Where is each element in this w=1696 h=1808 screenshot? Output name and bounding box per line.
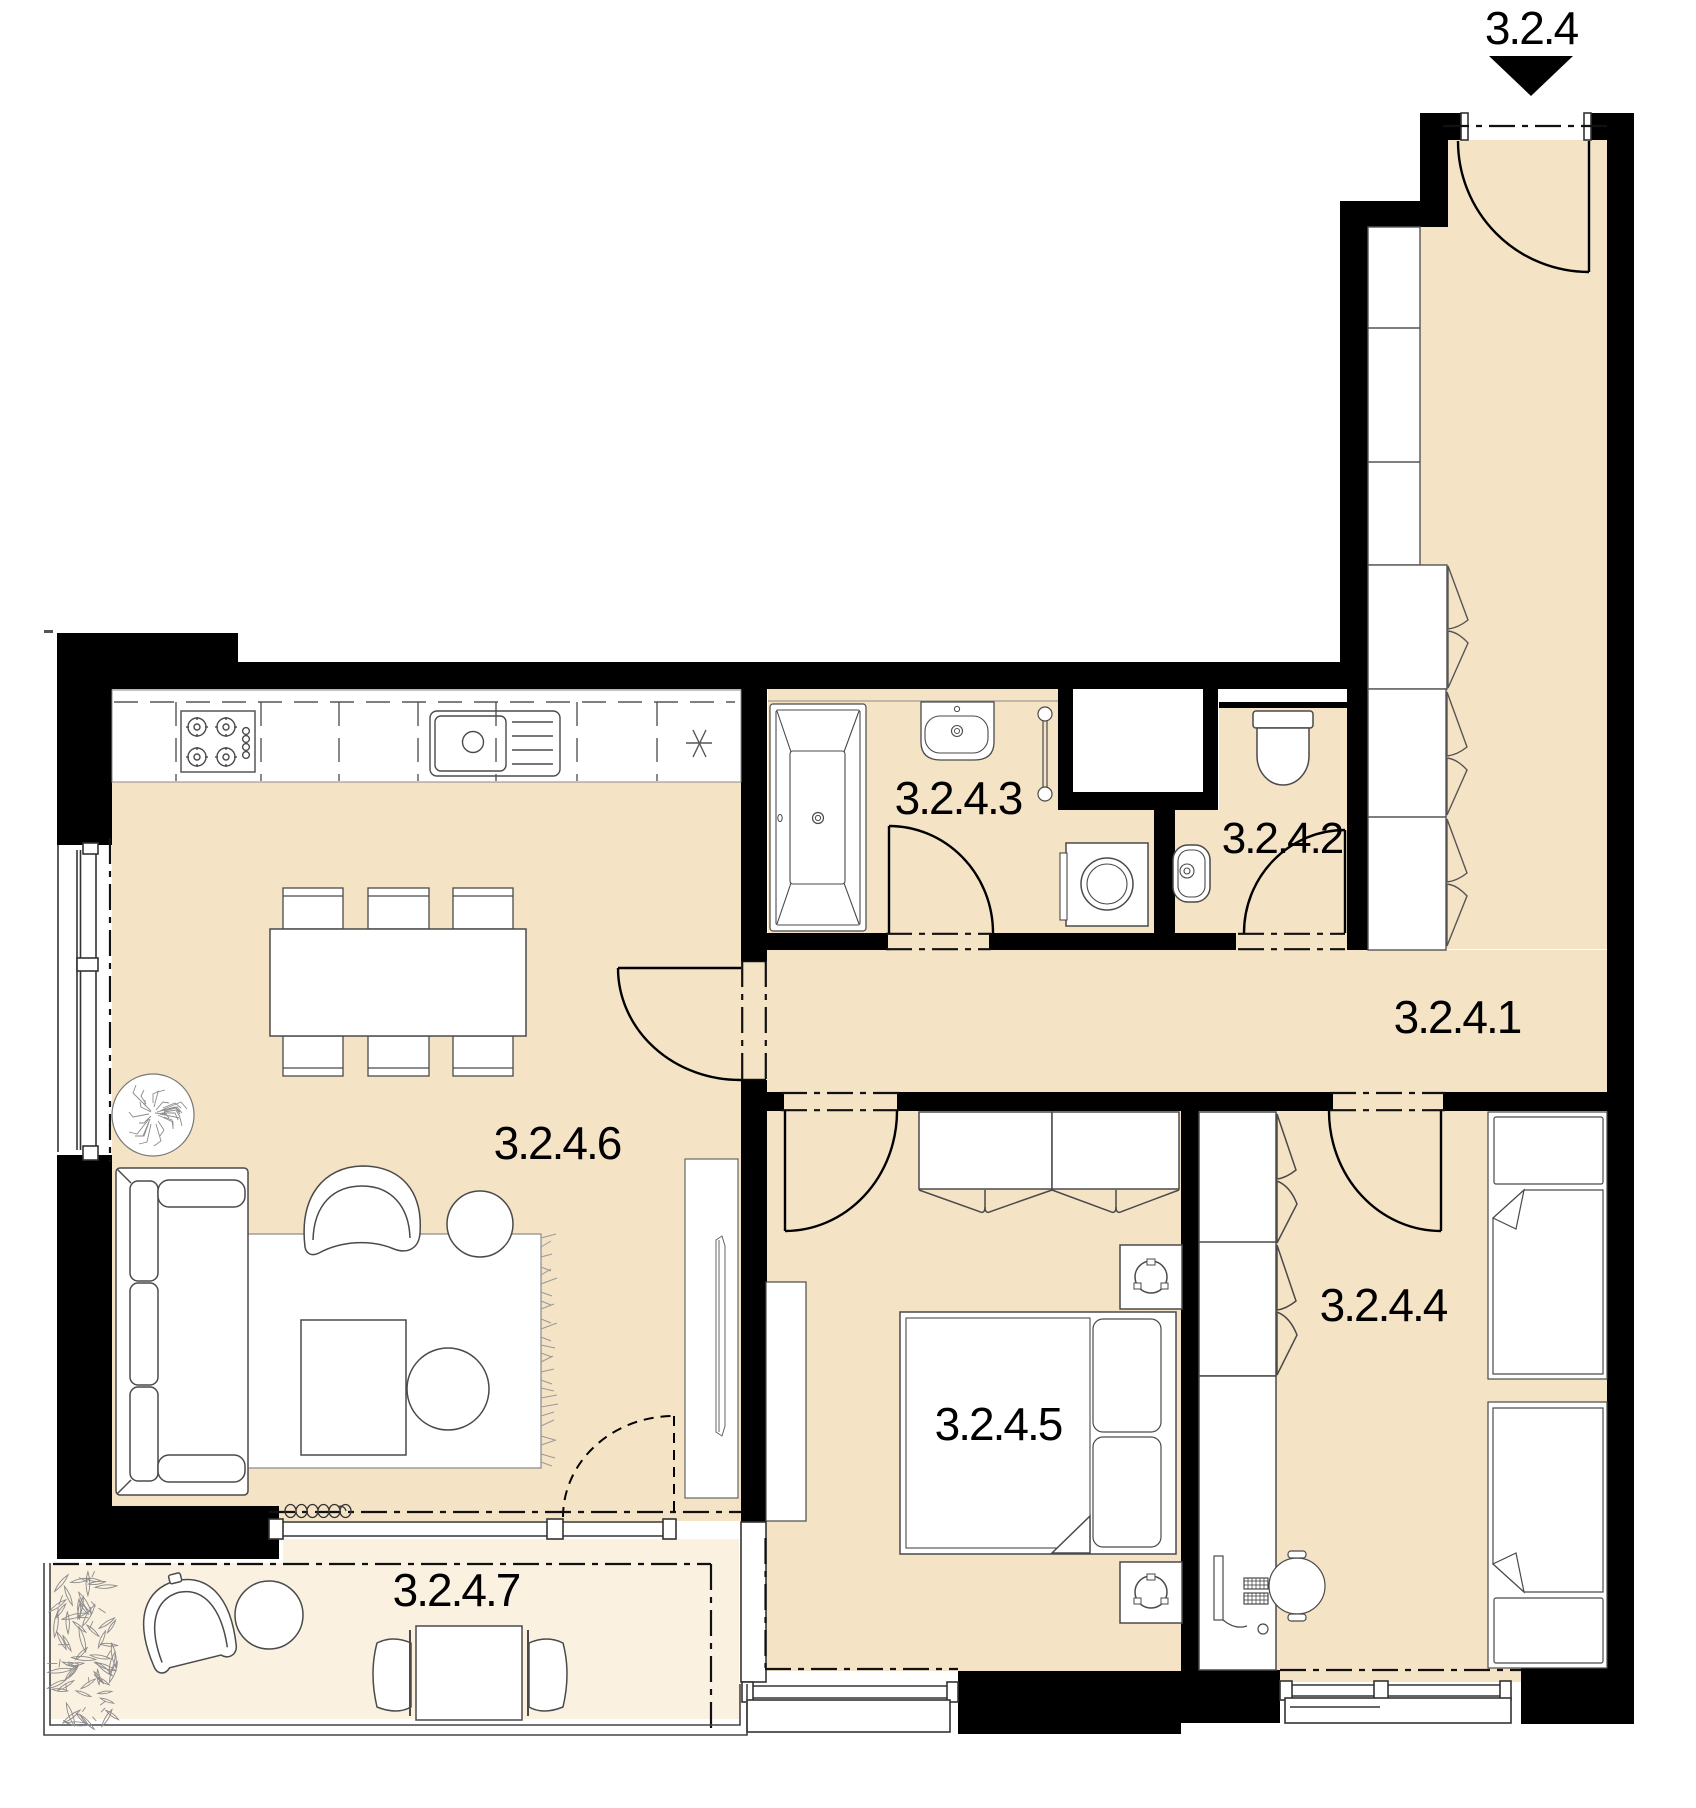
svg-text:3.2.4.5: 3.2.4.5 [935, 1398, 1062, 1450]
svg-text:3.2.4.6: 3.2.4.6 [494, 1117, 621, 1169]
svg-text:3.2.4: 3.2.4 [1485, 2, 1579, 54]
svg-text:3.2.4.2: 3.2.4.2 [1222, 814, 1343, 863]
svg-text:3.2.4.4: 3.2.4.4 [1320, 1279, 1448, 1331]
svg-text:3.2.4.7: 3.2.4.7 [393, 1564, 520, 1616]
svg-text:3.2.4.1: 3.2.4.1 [1394, 991, 1521, 1043]
svg-text:3.2.4.3: 3.2.4.3 [895, 772, 1022, 824]
